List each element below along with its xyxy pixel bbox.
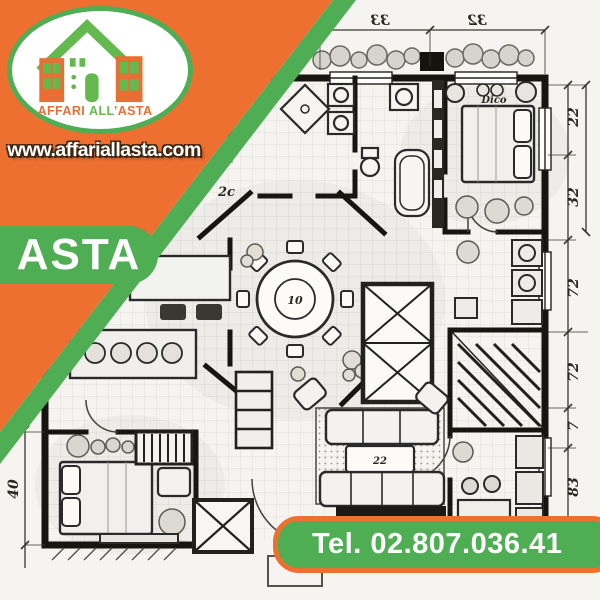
dim-left-1: 40 bbox=[6, 479, 22, 499]
phone-label: Tel. 02.807.036.41 bbox=[312, 528, 562, 561]
dim-right-2: 32 bbox=[566, 187, 582, 207]
dim-top-2: 32 bbox=[467, 13, 487, 29]
dining-table-label: 10 bbox=[287, 294, 303, 307]
drawer-cabinet bbox=[236, 372, 272, 448]
asta-badge: ASTA bbox=[0, 226, 158, 284]
coffee-table-label: 22 bbox=[372, 456, 387, 467]
bedroom-label: Dico bbox=[480, 95, 507, 106]
bedroom-bottom-left bbox=[60, 432, 192, 543]
dim-top-1: 33 bbox=[370, 13, 390, 29]
dim-right-1: 22 bbox=[566, 107, 582, 128]
dim-right-4: 72 bbox=[566, 362, 582, 382]
house-logo-icon bbox=[30, 18, 148, 104]
logo-oval: AFFARI ALL’ASTA bbox=[7, 6, 193, 134]
asta-badge-label: ASTA bbox=[17, 233, 142, 277]
logo-word-affari: AFFARI bbox=[38, 104, 86, 118]
website-text: www.affariallasta.com bbox=[4, 139, 204, 162]
dim-right-6: 83 bbox=[566, 477, 582, 497]
dim-right-3: 72 bbox=[566, 278, 582, 298]
wardrobe bbox=[363, 284, 432, 402]
logo-word-asta: ’ASTA bbox=[114, 104, 153, 118]
hall-label: 2c bbox=[217, 185, 235, 200]
phone-banner: Tel. 02.807.036.41 bbox=[273, 516, 600, 573]
logo-word-all: ALL bbox=[89, 104, 114, 118]
logo-wordmark: AFFARI ALL’ASTA bbox=[20, 104, 170, 118]
sofa bbox=[326, 410, 438, 444]
auction-flyer: 10 2c bbox=[0, 0, 600, 600]
dim-right-5: 7 bbox=[566, 421, 582, 431]
